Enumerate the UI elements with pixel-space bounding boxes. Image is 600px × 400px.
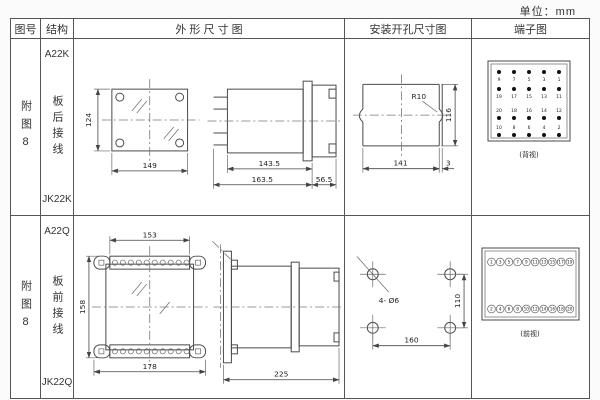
row2-structure: A22Q 板前接线 JK22Q: [41, 216, 74, 398]
svg-text:56.5: 56.5: [316, 174, 333, 183]
svg-text:4: 4: [543, 125, 546, 131]
svg-text:4- Ø6: 4- Ø6: [379, 296, 400, 305]
view-caption: (背视): [519, 150, 539, 159]
svg-text:3: 3: [543, 77, 546, 83]
svg-text:17: 17: [558, 260, 564, 265]
outline-drawing-jk22q: 153 158 178: [74, 216, 344, 398]
row2-terminal-drawing: 1 3 5 7 9 11 13 15 17 19 2 4 6 8 10 12 1…: [472, 216, 589, 398]
svg-text:13: 13: [541, 260, 547, 265]
unit-label: 单位：mm: [520, 3, 576, 19]
svg-text:3: 3: [499, 260, 502, 265]
svg-text:5: 5: [528, 77, 531, 83]
header-install-holes: 安装开孔尺寸图: [345, 19, 472, 39]
svg-text:141: 141: [393, 158, 407, 167]
svg-text:7: 7: [516, 260, 519, 265]
svg-text:11: 11: [556, 94, 562, 100]
front-view: 153 158 178: [78, 230, 208, 375]
svg-text:19: 19: [567, 260, 573, 265]
row1-structure: A22K 板后接线 JK22K: [41, 39, 74, 216]
header-terminal: 端子图: [472, 19, 589, 39]
svg-text:8: 8: [516, 307, 519, 312]
svg-text:16: 16: [550, 307, 556, 312]
svg-text:124: 124: [84, 112, 93, 127]
svg-text:18: 18: [558, 307, 564, 312]
row2-install-drawing: 4- Ø6 110 160: [345, 216, 472, 398]
svg-text:15: 15: [526, 94, 532, 100]
svg-text:2: 2: [558, 125, 561, 131]
svg-text:153: 153: [143, 230, 158, 239]
svg-text:18: 18: [511, 108, 517, 114]
side-view: 143.5 163.5 56.5: [208, 81, 342, 189]
header-figure-no: 图号: [11, 19, 41, 39]
row1-figure-no: 附图8: [11, 39, 41, 216]
front-view: 124 149: [84, 79, 200, 175]
svg-text:5: 5: [508, 260, 511, 265]
svg-text:12: 12: [556, 108, 562, 114]
header-structure: 结构: [41, 19, 74, 39]
svg-text:149: 149: [143, 160, 158, 169]
terminal-screws-front-view: 1 3 5 7 9 11 13 15 17 19 2 4 6 8 10 12 1…: [488, 258, 574, 313]
row2-figure-no: 附图8: [11, 216, 41, 398]
drill-plan-jk22q: 4- Ø6 110 160: [345, 216, 471, 398]
svg-text:10: 10: [496, 125, 502, 131]
svg-text:12: 12: [532, 307, 538, 312]
svg-text:19: 19: [496, 94, 502, 100]
row2-outline-drawing: 153 158 178: [74, 216, 345, 398]
cutout-drawing-jk22k: R10 141 3 116: [345, 39, 471, 216]
outline-drawing-jk22k: 124 149 143.5: [74, 39, 344, 216]
svg-text:14: 14: [541, 307, 547, 312]
svg-text:158: 158: [78, 300, 87, 315]
svg-text:11: 11: [532, 260, 538, 265]
dimension-table: 图号 结构 外 形 尺 寸 图 安装开孔尺寸图 端子图 附图8 A22K 板后接…: [10, 18, 590, 399]
svg-text:6: 6: [508, 307, 511, 312]
header-outline-dims: 外 形 尺 寸 图: [74, 19, 345, 39]
svg-text:6: 6: [528, 125, 531, 131]
terminal-diagram-jk22q: 1 3 5 7 9 11 13 15 17 19 2 4 6 8 10 12 1…: [472, 216, 589, 398]
mounting-holes: [360, 261, 463, 340]
svg-text:163.5: 163.5: [252, 174, 274, 183]
svg-text:3: 3: [446, 158, 451, 167]
row1-outline-drawing: 124 149 143.5: [74, 39, 345, 216]
svg-text:4: 4: [499, 307, 502, 312]
side-view: 225: [212, 241, 343, 383]
svg-text:1: 1: [558, 77, 561, 83]
terminal-pins-back-view: 9 7 5 3 1 19 17 15 13 11 20 18 16 14 12 …: [496, 70, 562, 137]
svg-text:10: 10: [524, 307, 530, 312]
svg-text:110: 110: [453, 294, 462, 308]
svg-text:15: 15: [550, 260, 556, 265]
svg-text:9: 9: [525, 260, 528, 265]
svg-text:16: 16: [526, 108, 532, 114]
row1-terminal-drawing: 9 7 5 3 1 19 17 15 13 11 20 18 16 14 12 …: [472, 39, 589, 216]
svg-text:143.5: 143.5: [259, 158, 281, 167]
row1-install-drawing: R10 141 3 116: [345, 39, 472, 216]
manual-page: { "unit_label": "单位：mm", "table": { "hea…: [0, 0, 600, 400]
svg-text:1: 1: [490, 260, 493, 265]
svg-text:20: 20: [567, 307, 573, 312]
svg-text:7: 7: [513, 77, 516, 83]
terminal-diagram-jk22k: 9 7 5 3 1 19 17 15 13 11 20 18 16 14 12 …: [472, 39, 589, 216]
svg-text:2: 2: [490, 307, 493, 312]
view-caption: (前视): [520, 329, 540, 338]
svg-text:225: 225: [274, 370, 289, 379]
svg-text:178: 178: [143, 362, 158, 371]
svg-text:14: 14: [541, 108, 547, 114]
svg-text:8: 8: [513, 125, 516, 131]
svg-text:20: 20: [496, 108, 502, 114]
svg-text:9: 9: [498, 77, 501, 83]
svg-text:R10: R10: [411, 92, 426, 101]
svg-text:116: 116: [444, 107, 453, 121]
svg-text:160: 160: [404, 336, 418, 345]
svg-text:13: 13: [541, 94, 547, 100]
svg-text:17: 17: [511, 94, 517, 100]
